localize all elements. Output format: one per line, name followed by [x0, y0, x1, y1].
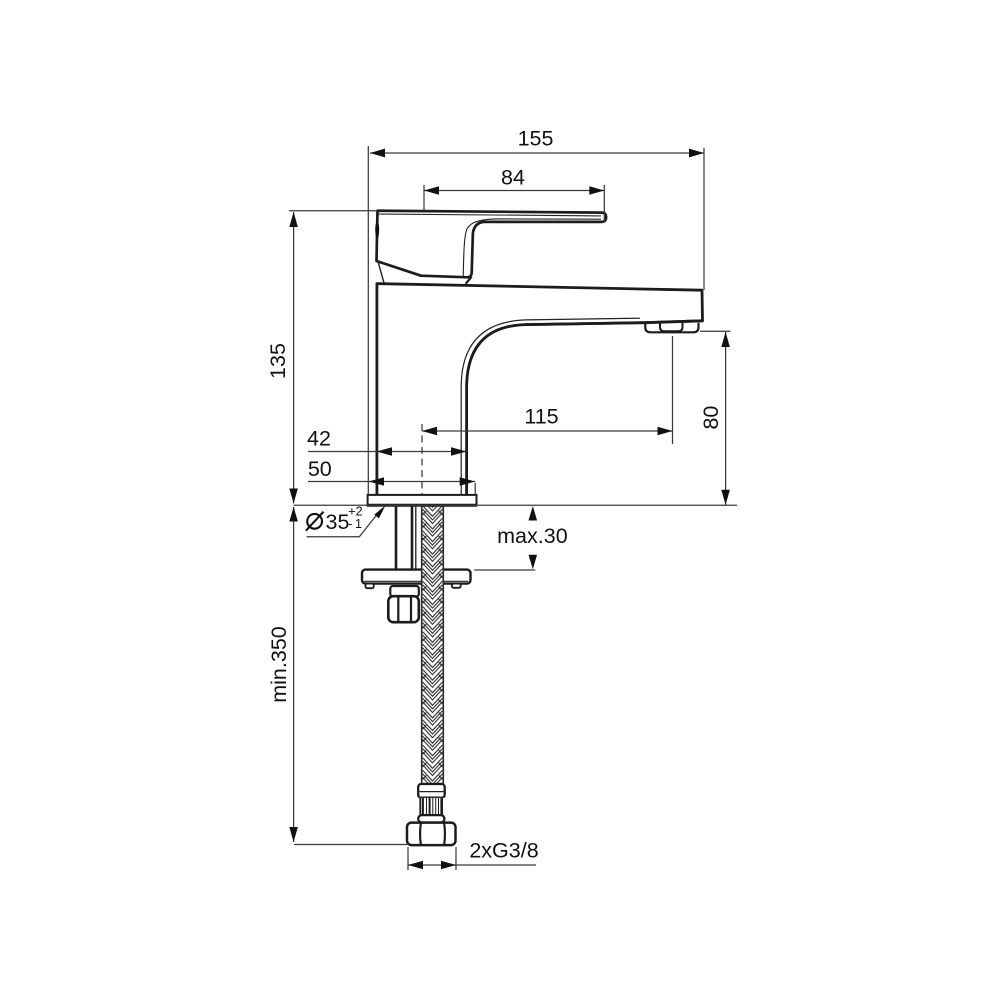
svg-text:50: 50	[308, 457, 332, 481]
svg-text:max.30: max.30	[497, 524, 568, 548]
svg-text:42: 42	[307, 426, 331, 450]
svg-text:min.350: min.350	[267, 626, 291, 703]
svg-text:35: 35	[326, 510, 350, 534]
svg-text:84: 84	[501, 166, 525, 190]
svg-text:135: 135	[266, 343, 290, 379]
svg-text:80: 80	[699, 406, 723, 430]
svg-text:155: 155	[518, 126, 554, 150]
svg-text:115: 115	[524, 405, 558, 429]
svg-text:- 1: - 1	[348, 517, 362, 531]
svg-text:2xG3/8: 2xG3/8	[469, 839, 538, 863]
